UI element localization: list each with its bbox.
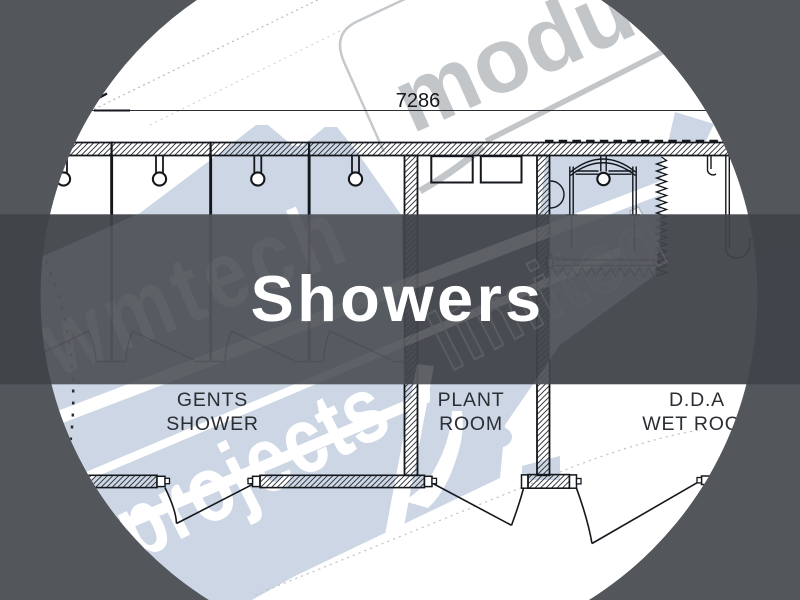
- svg-text:GENTS: GENTS: [177, 389, 248, 411]
- svg-text:PLANT: PLANT: [438, 389, 505, 411]
- svg-text:ROOM: ROOM: [439, 413, 503, 435]
- svg-text:D.D.A: D.D.A: [669, 389, 725, 411]
- svg-text:7286: 7286: [396, 90, 441, 112]
- svg-text:SHOWER: SHOWER: [166, 413, 259, 435]
- svg-text:Showers: Showers: [250, 262, 544, 335]
